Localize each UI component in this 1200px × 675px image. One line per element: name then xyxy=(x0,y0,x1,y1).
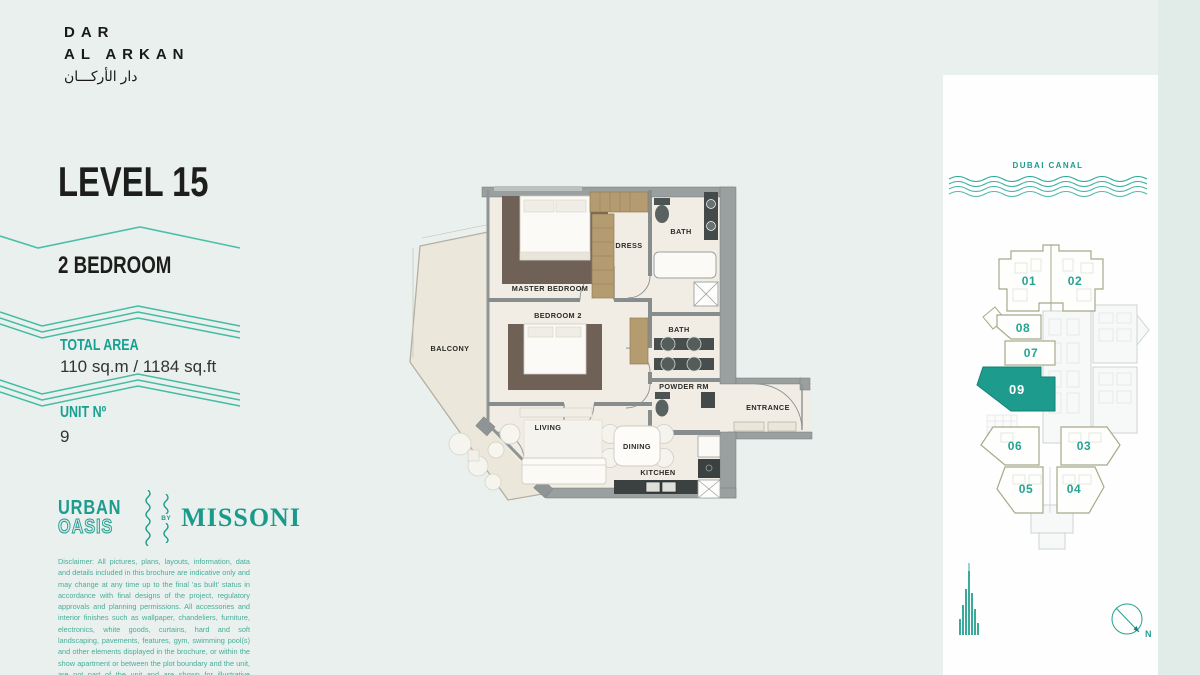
unit-07-label: 07 xyxy=(1024,346,1039,360)
room-label-bath2: BATH xyxy=(668,325,689,334)
zigzag-divider-1 xyxy=(0,224,246,252)
brochure-page: DAR AL ARKAN دار الأركـــان LEVEL 15 2 B… xyxy=(0,0,1200,675)
room-label-kitchen: KITCHEN xyxy=(640,468,675,477)
key-plan-panel: DUBAI CANAL xyxy=(943,75,1158,675)
room-label-entrance: ENTRANCE xyxy=(746,403,790,412)
squiggle-bottom-icon xyxy=(161,523,171,543)
brand-line-1: DAR xyxy=(64,22,190,44)
squiggle-top-icon xyxy=(161,494,171,514)
key-plan-drawing: DUBAI CANAL xyxy=(943,75,1158,675)
room-label-dining: DINING xyxy=(623,442,651,451)
unit-number-label: UNIT Nº xyxy=(60,404,119,422)
compass-north-label: N xyxy=(1145,629,1152,639)
unit-number-value: 9 xyxy=(60,427,69,447)
key-plan-unit-07: 07 xyxy=(1005,341,1055,365)
burj-khalifa-icon xyxy=(960,563,978,635)
total-area-label: TOTAL AREA xyxy=(60,337,161,355)
canal-waves-icon xyxy=(949,177,1147,197)
brand-line-2: AL ARKAN xyxy=(64,44,190,66)
key-plan-unit-08: 08 xyxy=(983,307,1041,339)
dar-al-arkan-logo: DAR AL ARKAN دار الأركـــان xyxy=(64,22,190,85)
room-label-dress: DRESS xyxy=(615,241,642,250)
unit-09-label: 09 xyxy=(1009,382,1025,397)
floor-plan: MASTER BEDROOM BEDROOM 2 DRESS BATH BATH… xyxy=(398,186,838,508)
page-title-level: LEVEL 15 xyxy=(58,158,251,206)
unit-01-label: 01 xyxy=(1022,274,1037,288)
oasis-word: OASIS xyxy=(58,518,121,537)
room-label-bath1: BATH xyxy=(670,227,691,236)
room-label-master-bedroom: MASTER BEDROOM xyxy=(512,284,589,293)
brand-arabic: دار الأركـــان xyxy=(64,68,190,85)
floor-plan-drawing: MASTER BEDROOM BEDROOM 2 DRESS BATH BATH… xyxy=(398,186,838,508)
zigzag-divider-3 xyxy=(0,372,246,414)
bedroom-type-subtitle: 2 BEDROOM xyxy=(58,252,203,280)
unit-02-label: 02 xyxy=(1068,274,1083,288)
background-strip xyxy=(1158,0,1200,675)
unit-08-label: 08 xyxy=(1016,321,1031,335)
room-label-bedroom2: BEDROOM 2 xyxy=(534,311,582,320)
by-label: BY xyxy=(161,515,171,522)
bedroom2-bed xyxy=(508,324,602,390)
room-label-balcony: BALCONY xyxy=(431,344,470,353)
urban-oasis-missoni-logo: URBAN OASIS BY MISSONI xyxy=(58,490,301,546)
unit-03-label: 03 xyxy=(1077,439,1092,453)
missoni-wordmark: MISSONI xyxy=(181,503,301,533)
compass-icon: N xyxy=(1112,604,1152,639)
by-divider: BY xyxy=(161,494,171,543)
unit-06-label: 06 xyxy=(1008,439,1023,453)
unit-04-label: 04 xyxy=(1067,482,1082,496)
key-plan-units-top: 01 02 xyxy=(999,245,1103,311)
room-label-powder: POWDER RM xyxy=(659,382,709,391)
unit-05-label: 05 xyxy=(1019,482,1034,496)
dubai-canal-label: DUBAI CANAL xyxy=(1013,161,1084,170)
disclaimer-text: Disclaimer: All pictures, plans, layouts… xyxy=(58,556,250,675)
room-label-living: LIVING xyxy=(535,423,562,432)
squiggle-divider-icon xyxy=(143,490,153,546)
urban-oasis-wordmark: URBAN OASIS xyxy=(58,499,135,537)
